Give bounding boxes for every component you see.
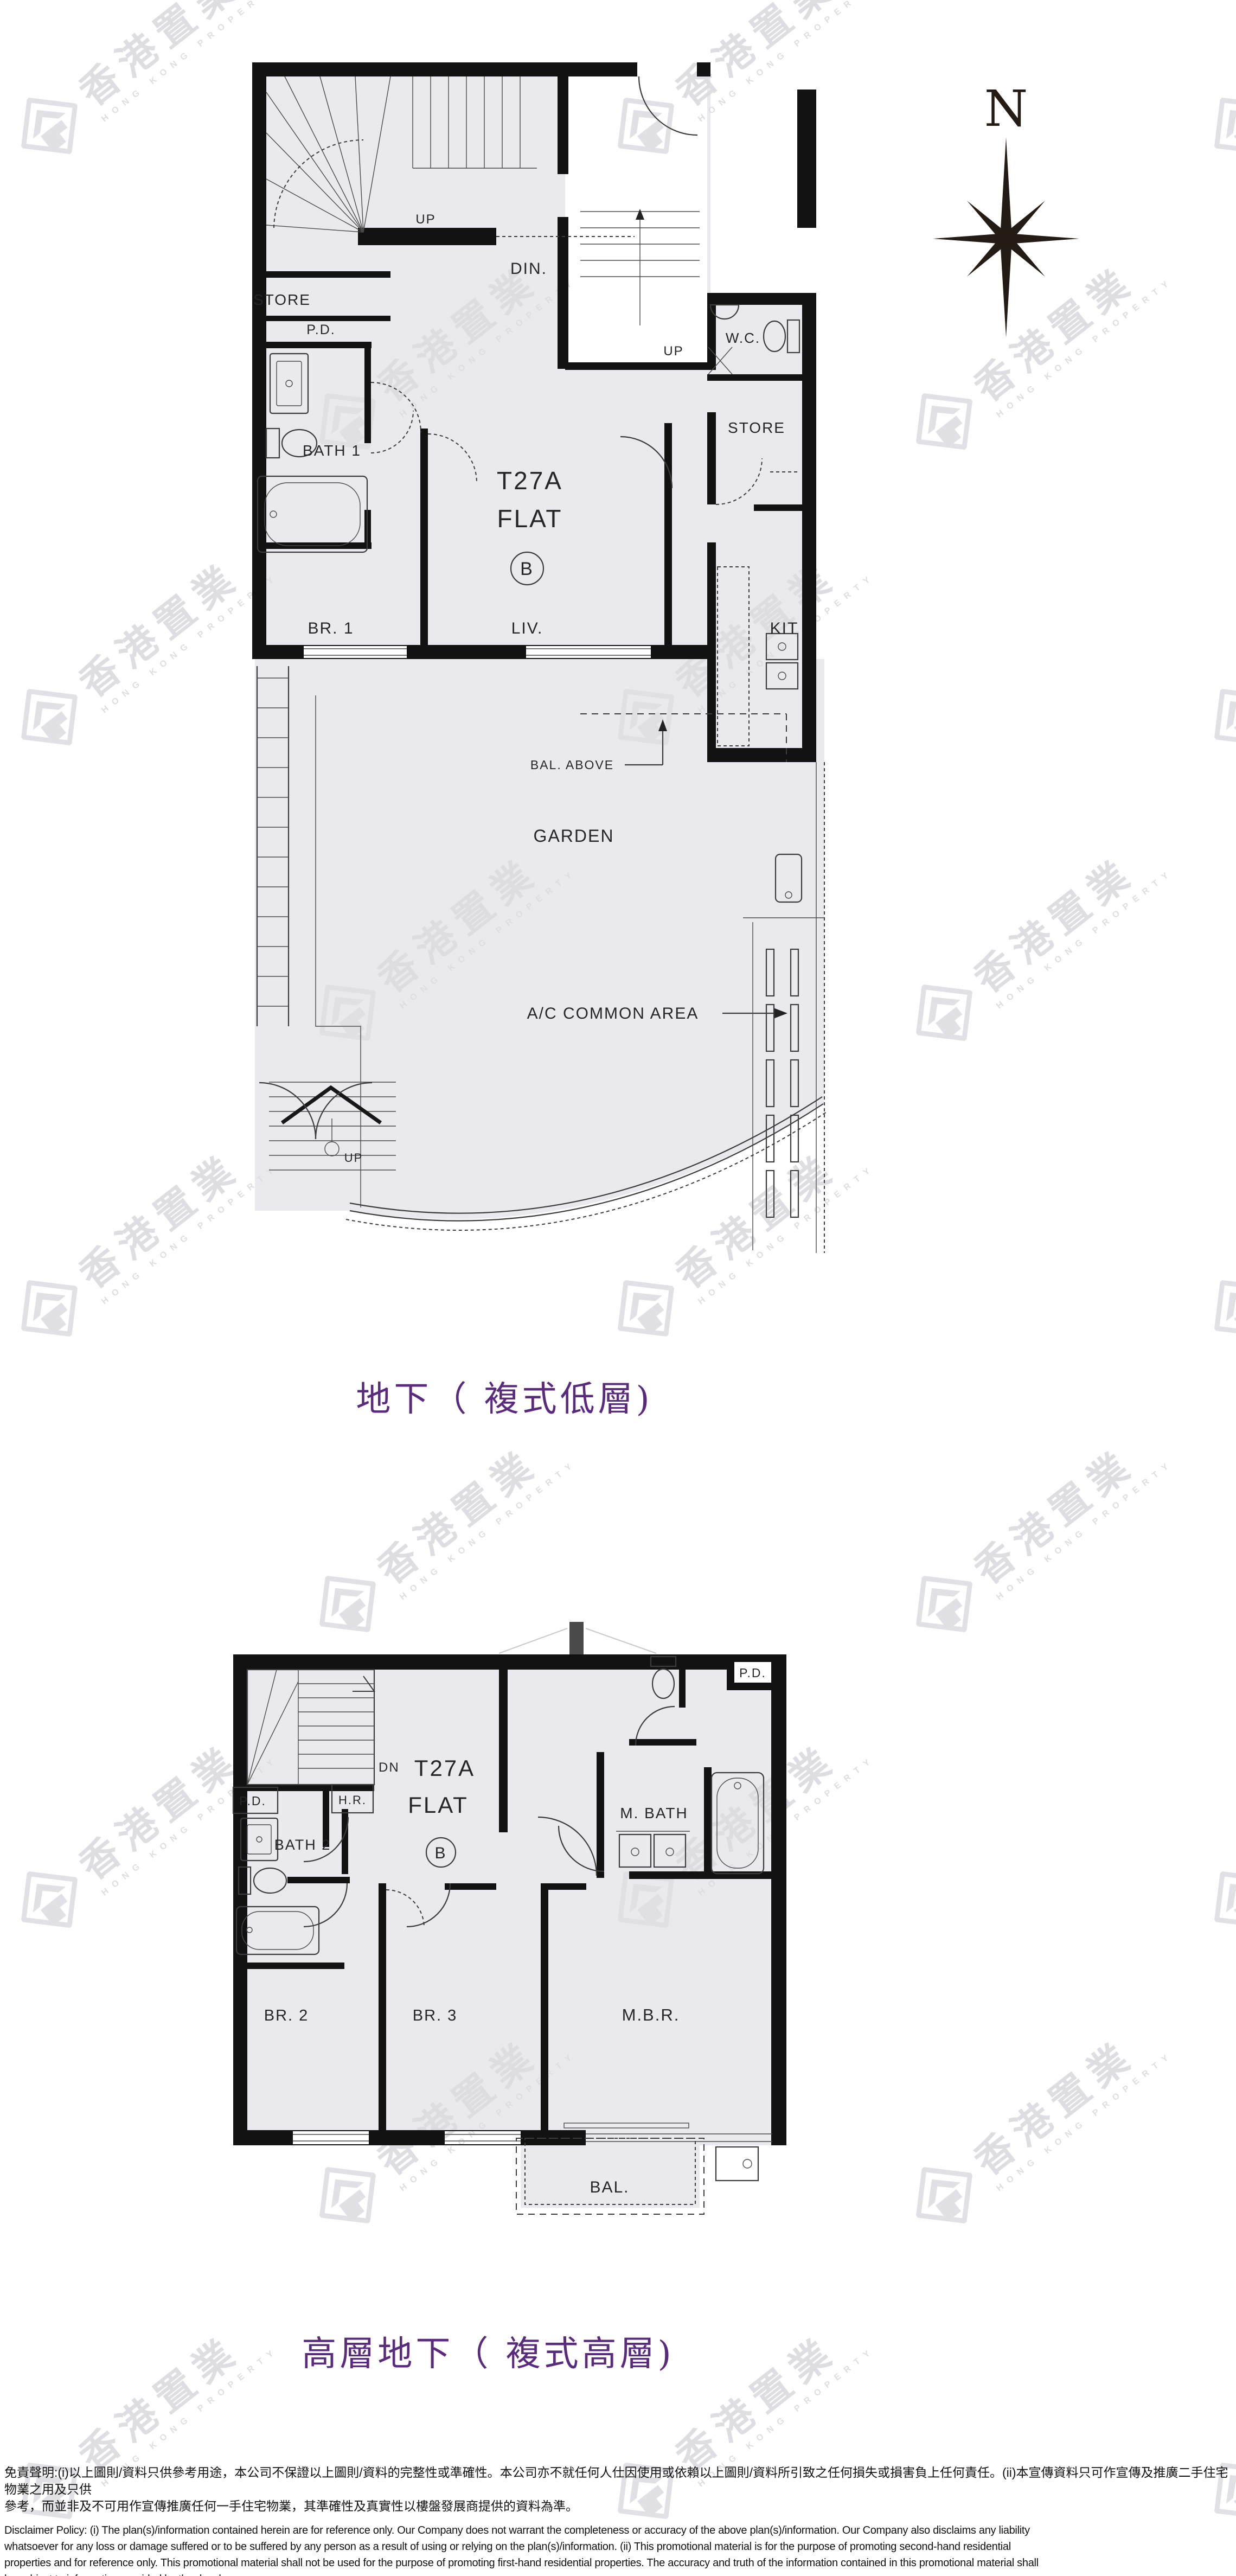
plan2-flat-letter: B (434, 1844, 447, 1862)
plan2-hr-label: H.R. (338, 1793, 367, 1807)
plan1-tower-label: T27A (497, 466, 563, 495)
watermark-company-en: HONG KONG PROPERTY (995, 2049, 1175, 2194)
hkp-house-logo-icon (895, 1555, 993, 1653)
plan1-flat-word: FLAT (497, 504, 562, 533)
plan1-flat-letter: B (520, 559, 534, 579)
plan1-bal-above-label: BAL. ABOVE (530, 758, 614, 772)
plan2-mbath-label: M. BATH (620, 1805, 688, 1821)
watermark-company-cn: 香港置業 (959, 1413, 1169, 1594)
plan1-din-label: DIN. (510, 260, 547, 278)
watermark: 香港置業 HONG KONG PROPERTY (895, 1412, 1176, 1653)
watermark: 香港置業 HONG KONG PROPERTY (1194, 0, 1236, 175)
watermark: 香港置業 HONG KONG PROPERTY (1194, 1708, 1236, 1948)
floorplan-lower-duplex: UP UP BATH 1 (233, 0, 835, 1264)
hkp-house-logo-icon (1194, 77, 1236, 175)
disclaimer-zh-line1: 免責聲明:(i)以上圖則/資料只供參考用途，本公司不保證以上圖則/資料的完整性或… (4, 2464, 1233, 2498)
watermark-company-cn: 香港置業 (363, 1413, 573, 1594)
disclaimer-zh-line2: 參考，而並非及不可用作宣傳推廣任何一手住宅物業，其準確性及真實性以樓盤發展商提供… (4, 2498, 1233, 2515)
hkp-house-logo-icon (1194, 668, 1236, 766)
plan2-bath2-label: BATH 2 (274, 1837, 331, 1853)
plan2-pd-left-label: P.D. (239, 1794, 266, 1808)
plan2-br2-label: BR. 2 (264, 2007, 309, 2024)
disclaimer-en-line2: whatsoever for any loss or damage suffer… (4, 2539, 1233, 2555)
floorplan-page: 香港置業 HONG KONG PROPERTY 香港置業 HONG KONG P… (0, 0, 1236, 2576)
hkp-house-logo-icon (895, 373, 993, 470)
plan2-br3-label: BR. 3 (413, 2007, 458, 2024)
plan1-kit-label: KIT (770, 619, 799, 637)
watermark: 香港置業 HONG KONG PROPERTY (1194, 525, 1236, 766)
plan1-up-lobby-label: UP (663, 344, 683, 359)
hkp-house-logo-icon (1194, 1851, 1236, 1948)
hkp-house-logo-icon (1, 1851, 98, 1948)
hkp-house-logo-icon (895, 964, 993, 1062)
plan1-pd-label: P.D. (306, 322, 335, 337)
hkp-house-logo-icon (895, 2146, 993, 2244)
plan2-tower-label: T27A (414, 1755, 475, 1781)
watermark-company-en: HONG KONG PROPERTY (995, 1458, 1175, 1602)
plan1-ac-common-label: A/C COMMON AREA (527, 1005, 699, 1022)
watermark: 香港置業 HONG KONG PROPERTY (299, 1412, 580, 1653)
hkp-house-logo-icon (1, 668, 98, 766)
disclaimer-en-line3: properties and for reference only. This … (4, 2555, 1233, 2571)
plan1-up-stair-label: UP (415, 212, 436, 227)
plan1-wc-label: W.C. (726, 330, 760, 346)
plan1-liv-label: LIV. (511, 619, 543, 637)
watermark-company-cn: 香港置業 (959, 822, 1169, 1003)
hkp-house-logo-icon (597, 1260, 695, 1357)
plan1-store-left-label: STORE (253, 291, 311, 308)
plan1-store-right-label: STORE (728, 419, 785, 436)
plan2-corner-fixture (716, 2147, 758, 2181)
disclaimer-en-line1: Disclaimer Policy: (i) The plan(s)/infor… (4, 2522, 1233, 2539)
plan2-pd-right-label: P.D. (739, 1666, 766, 1680)
watermark: 香港置業 HONG KONG PROPERTY (895, 821, 1176, 1062)
plan2-bal-label: BAL. (590, 2178, 629, 2196)
watermark: 香港置業 HONG KONG PROPERTY (1194, 1116, 1236, 1357)
hkp-house-logo-icon (1194, 1260, 1236, 1357)
plan2-flat-word: FLAT (408, 1792, 469, 1818)
floor2-caption: 高層地下（ 複式高層) (217, 2326, 759, 2376)
plan1-garden-label: GARDEN (534, 826, 614, 846)
hkp-house-logo-icon (1, 77, 98, 175)
hkp-house-logo-icon (1, 1260, 98, 1357)
floor1-caption: 地下（ 複式低層) (233, 1371, 776, 1421)
watermark: 香港置業 HONG KONG PROPERTY (895, 2003, 1176, 2244)
plan1-up-garden-label: UP (344, 1151, 363, 1165)
floorplan-upper-duplex: DN P.D. H.R. BATH 2 (217, 1622, 824, 2257)
plan1-br1-label: BR. 1 (308, 619, 354, 637)
watermark-company-en: HONG KONG PROPERTY (398, 1458, 579, 1602)
plan1-bath1-label: BATH 1 (303, 442, 361, 459)
disclaimer-en-line4: be subject to information provided by th… (4, 2571, 1233, 2576)
plan2-floor-fill (233, 1654, 786, 2208)
watermark-company-cn: 香港置業 (959, 2004, 1169, 2185)
disclaimer-block: 免責聲明:(i)以上圖則/資料只供參考用途，本公司不保證以上圖則/資料的完整性或… (4, 2464, 1233, 2576)
plan1-floor-fill (252, 62, 824, 1219)
watermark-company-en: HONG KONG PROPERTY (995, 867, 1175, 1011)
north-label: N (984, 80, 1028, 138)
plan2-mbr-label: M.B.R. (622, 2005, 680, 2024)
compass-star-icon (933, 137, 1079, 337)
plan2-top-stub (569, 1622, 584, 1655)
north-compass: N (900, 60, 1117, 347)
plan2-dn-label: DN (379, 1760, 400, 1775)
